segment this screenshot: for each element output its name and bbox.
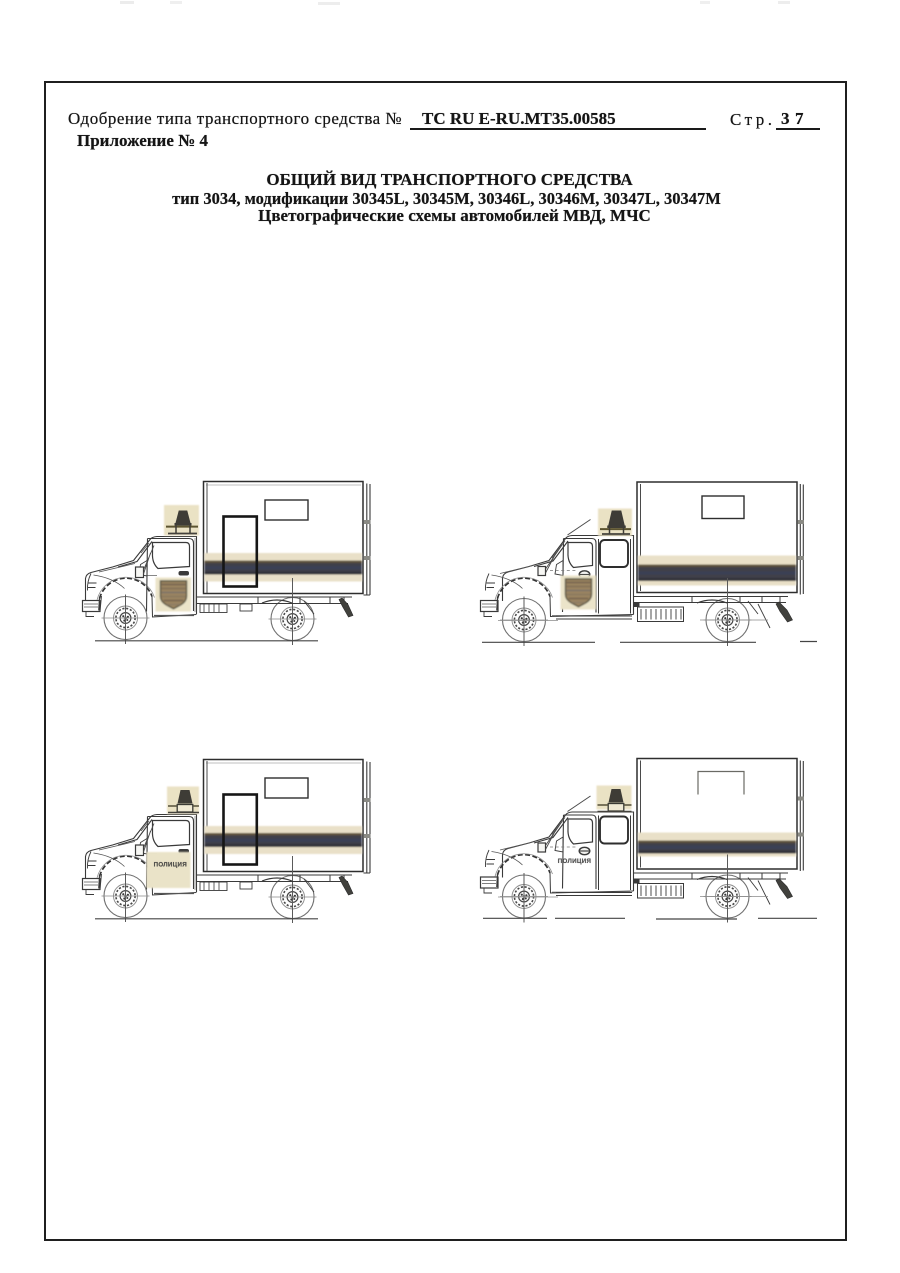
svg-text:ПОЛИЦИЯ: ПОЛИЦИЯ: [154, 862, 188, 869]
svg-text:ПОЛИЦИЯ: ПОЛИЦИЯ: [558, 858, 592, 865]
